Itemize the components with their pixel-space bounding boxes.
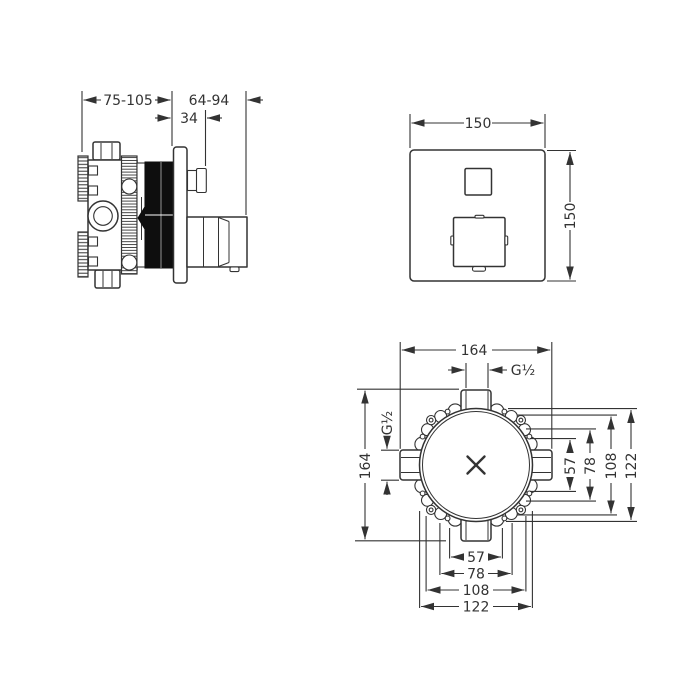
wall-plate-side [174, 147, 188, 283]
dim-mount-depth-label: 75-105 [103, 93, 153, 109]
top-hex-nut [93, 142, 120, 160]
handle-tick-top [475, 215, 484, 218]
diverter-button-side [188, 169, 207, 193]
ribbed-flange-bottom [78, 232, 88, 277]
side-view: 75-105 64-94 34 [78, 91, 263, 288]
right-dim-57-label: 57 [563, 457, 579, 475]
handle-tick-right [505, 236, 508, 245]
front-view: 150 150 [410, 114, 579, 281]
column-hole-top [122, 179, 137, 194]
front-height-label: 150 [563, 203, 579, 230]
right-dim-78-label: 78 [583, 457, 599, 475]
ribbed-flange-top [78, 156, 88, 201]
bottom-dim-78-label: 78 [467, 567, 485, 583]
plan-width-label: 164 [461, 343, 488, 359]
dim-trim-depth-label: 64-94 [189, 93, 230, 109]
side-boss [88, 201, 118, 231]
left-port-thread-label: G½ [380, 411, 396, 435]
handle-front [451, 215, 508, 271]
plan-view: 164 G½ G½ 164 57 78 108 122 57 78 108 12… [355, 342, 640, 616]
handle-nub-side [230, 267, 239, 272]
plan-height-label: 164 [358, 453, 374, 480]
dim-plate-depth-label: 34 [180, 111, 198, 127]
valve-body-side [78, 142, 247, 288]
right-dim-108-label: 108 [604, 453, 620, 480]
diverter-button-front [465, 169, 492, 196]
handle-side [187, 217, 247, 272]
column-hole-bottom [122, 255, 137, 270]
bottom-dim-122-label: 122 [463, 600, 490, 616]
bottom-dim-57-label: 57 [467, 550, 485, 566]
bottom-dim-108-label: 108 [463, 583, 490, 599]
right-dim-122-label: 122 [624, 453, 640, 480]
technical-drawing-page: 75-105 64-94 34 [0, 0, 700, 700]
handle-tick-left [451, 236, 454, 245]
front-width-label: 150 [465, 116, 492, 132]
top-port-thread-label: G½ [511, 363, 535, 379]
rough-in-sleeve [145, 162, 175, 268]
installation-drawing: 75-105 64-94 34 [0, 0, 700, 700]
bottom-hex-nut [95, 270, 120, 288]
handle-nub-front [473, 267, 486, 272]
